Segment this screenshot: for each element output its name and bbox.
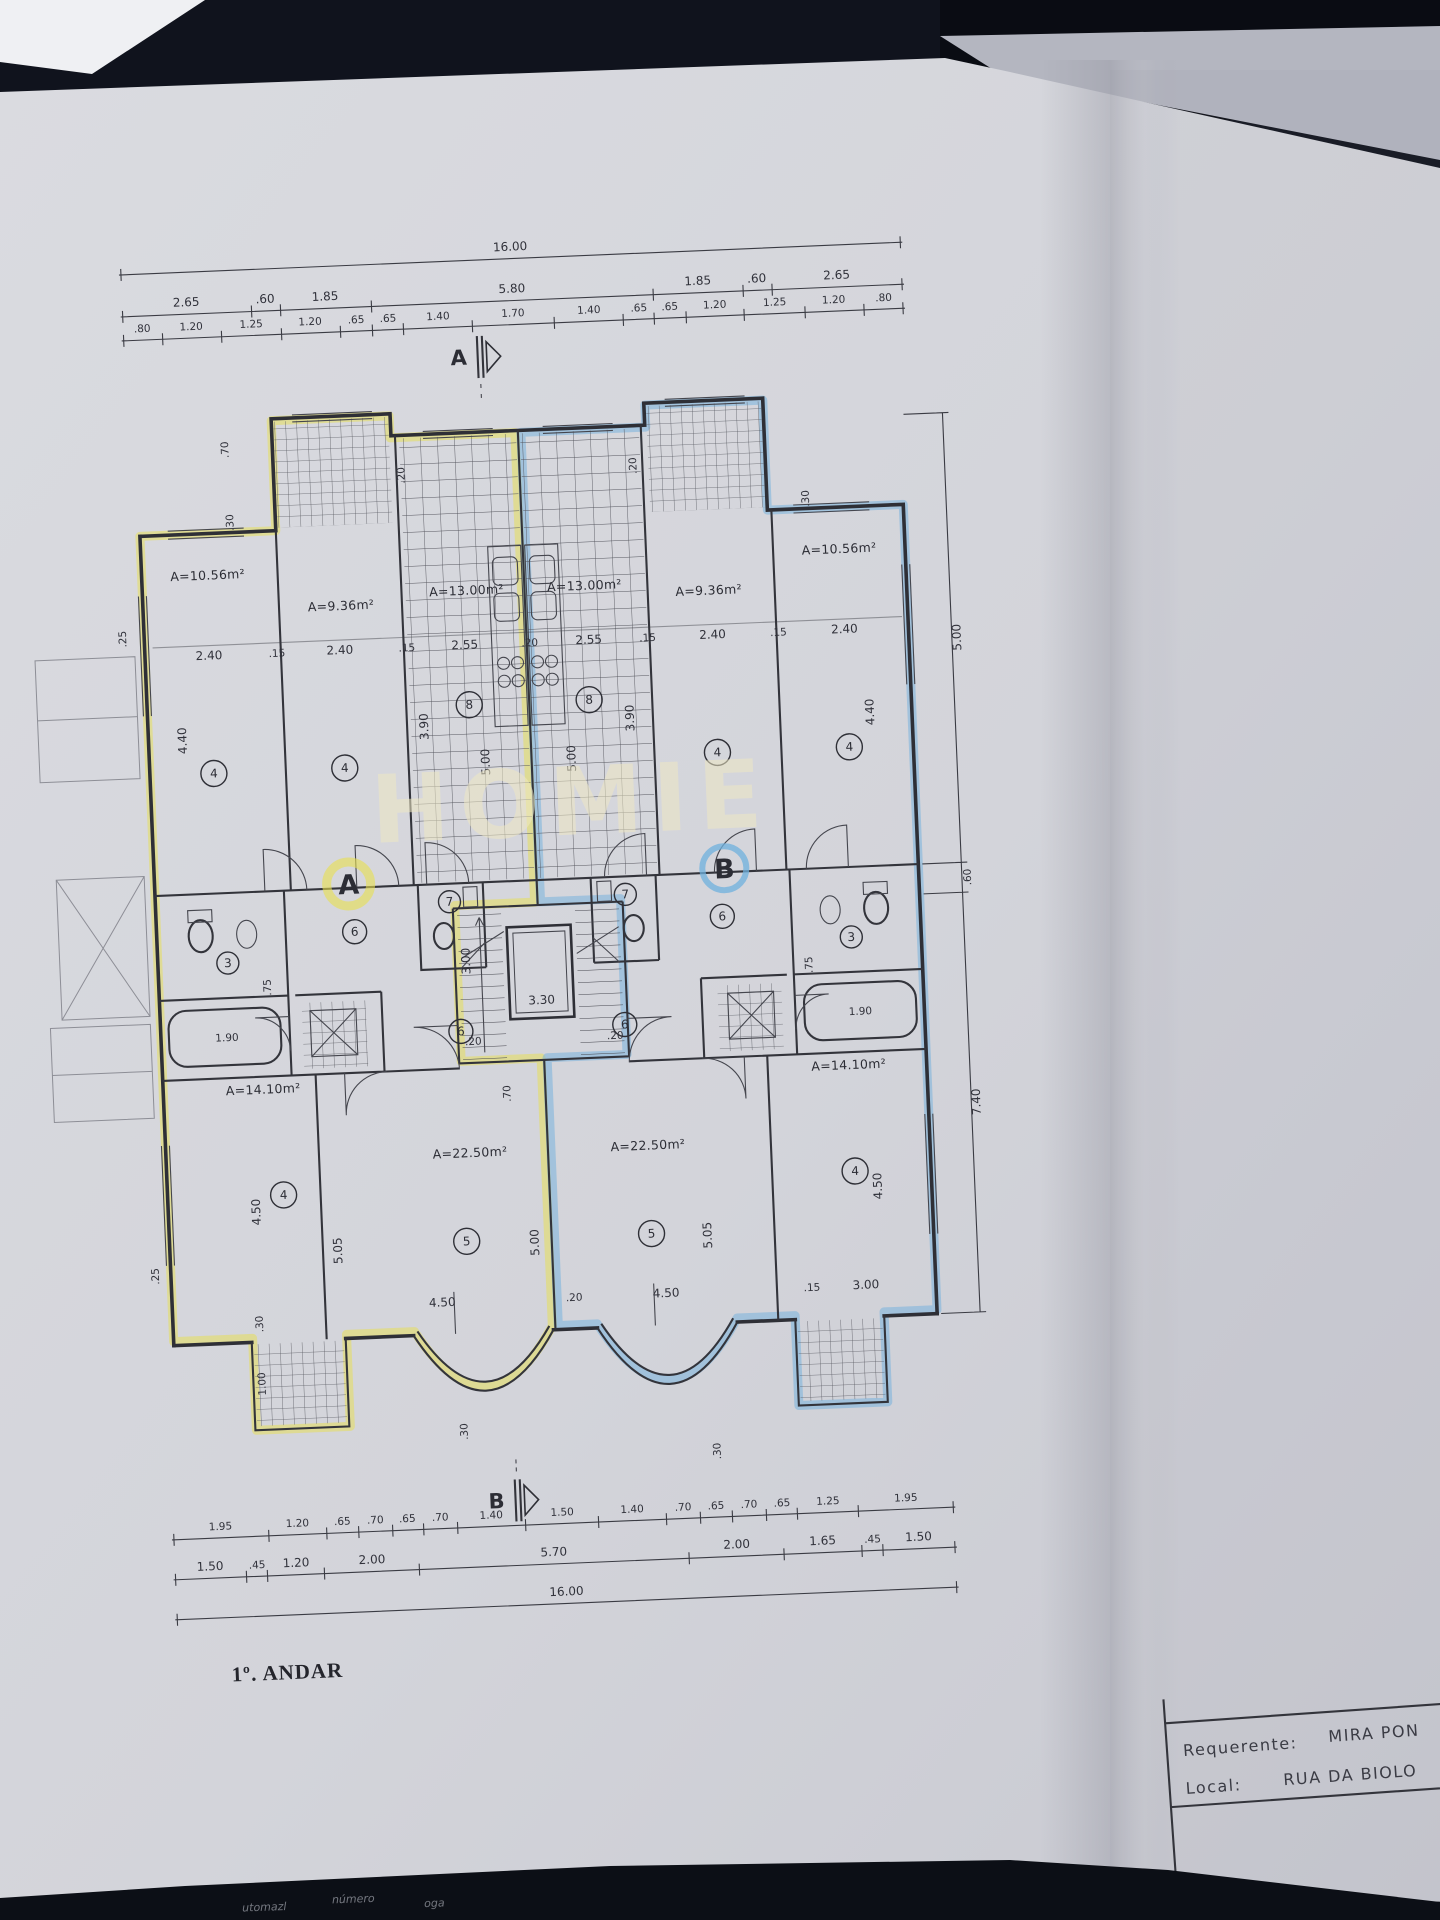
section-marker-top-label: A: [450, 346, 468, 371]
dim-label: .70: [740, 1498, 757, 1511]
room-number: 4: [280, 1188, 288, 1202]
dim-label: 1.90: [849, 1005, 873, 1018]
dim-label: 1.20: [298, 316, 322, 329]
paper-right-panel-tint: [1110, 70, 1440, 1920]
room-number: 8: [465, 698, 473, 712]
dim-label: .80: [875, 292, 892, 305]
dim-label: 4.50: [429, 1295, 456, 1310]
room-number: 4: [210, 766, 218, 780]
room-number: 7: [445, 895, 453, 909]
dim-label: .65: [661, 301, 678, 314]
room-area-label: A=13.00m²: [429, 581, 504, 599]
dim-label: .30: [254, 1315, 267, 1332]
dim-label: 1.25: [816, 1495, 840, 1508]
dim-label: 3.00: [852, 1277, 879, 1292]
dim-label: 5.05: [330, 1237, 345, 1264]
dim-label: 4.50: [870, 1172, 885, 1199]
dim-label: .15: [639, 632, 656, 645]
dim-label: .15: [770, 626, 787, 639]
room-area-label: A=10.56m²: [170, 566, 245, 584]
dim-label: 4.50: [249, 1198, 264, 1225]
room-number: 3: [847, 930, 855, 944]
dim-label: 5.00: [527, 1229, 542, 1256]
dim-label: 1.95: [894, 1492, 918, 1505]
dim-label: .70: [674, 1501, 691, 1514]
dim-label: .20: [627, 457, 640, 474]
dim-label: 1.40: [426, 310, 450, 323]
dim-label: .70: [219, 441, 232, 458]
dim-label: .60: [747, 271, 767, 286]
dim-label: 1.90: [215, 1032, 239, 1045]
dim-label: 1.20: [703, 299, 727, 312]
dim-label: 5.05: [700, 1222, 715, 1249]
room-number: 8: [585, 693, 593, 707]
dim-label: 1.65: [809, 1533, 836, 1548]
room-number: 4: [845, 740, 853, 754]
dim-label: .75: [262, 979, 275, 996]
dim-label: 1.25: [763, 296, 787, 309]
dim-label: 1.25: [239, 318, 263, 331]
dim-label: 1.40: [620, 1503, 644, 1516]
dim-label: 2.65: [823, 267, 850, 282]
dim-label: 4.50: [652, 1285, 679, 1300]
dim-label: 2.40: [699, 627, 726, 642]
edge-text-fragment: número: [332, 1892, 375, 1906]
dim-label: .65: [334, 1515, 351, 1528]
dim-label: 16.00: [493, 239, 528, 254]
room-area-label: A=22.50m²: [610, 1136, 685, 1154]
dim-label: .15: [268, 647, 285, 660]
room-number: 6: [351, 925, 359, 939]
dim-label: 2.40: [326, 643, 353, 658]
dim-label: .25: [117, 631, 130, 648]
dim-label: .20: [566, 1292, 583, 1305]
dim-label: .30: [711, 1442, 724, 1459]
room-area-label: A=9.36m²: [307, 597, 374, 615]
dim-label: .70: [367, 1514, 384, 1527]
dim-label: 1.50: [550, 1506, 574, 1519]
room-number: 6: [718, 909, 726, 923]
room-area-label: A=13.00m²: [547, 576, 622, 594]
dim-label: 1.50: [905, 1529, 932, 1544]
dim-label: .75: [803, 956, 816, 973]
dim-label: 1.70: [501, 307, 525, 320]
dim-label: 2.55: [575, 632, 602, 647]
dim-label: 2.00: [723, 1537, 750, 1552]
room-number: 4: [851, 1164, 859, 1178]
terrace-a: [273, 417, 392, 528]
dim-label: .70: [501, 1085, 514, 1102]
dim-label: .25: [150, 1268, 163, 1285]
dim-label: 7.40: [969, 1088, 984, 1115]
dim-label: 1.95: [209, 1520, 233, 1533]
dim-label: 2.65: [173, 295, 200, 310]
dim-label: 2.40: [831, 621, 858, 636]
dim-label: .30: [224, 514, 237, 531]
floor-title: 1º. ANDAR: [231, 1658, 344, 1687]
dim-label: 1.85: [311, 289, 338, 304]
dim-label: 5.70: [540, 1544, 567, 1559]
dim-label: .15: [398, 642, 415, 655]
dim-label: 5.00: [949, 624, 964, 651]
dim-label: .20: [607, 1030, 624, 1043]
dim-label: 5.80: [498, 281, 525, 296]
dim-label: 16.00: [549, 1584, 584, 1599]
dim-label: .65: [707, 1500, 724, 1513]
dim-label: 2.40: [195, 648, 222, 663]
dim-label: 1.40: [577, 304, 601, 317]
dim-label: .65: [773, 1497, 790, 1510]
dim-label: .20: [521, 637, 538, 650]
dim-label: 1.50: [196, 1559, 223, 1574]
dim-label: .70: [432, 1511, 449, 1524]
dim-label: 1.00: [256, 1372, 269, 1396]
edge-text-fragment: oga: [424, 1896, 445, 1910]
dim-label: .65: [399, 1513, 416, 1526]
terrace-b: [646, 401, 765, 512]
dim-label: .60: [962, 868, 975, 885]
dim-label: .80: [134, 323, 151, 336]
photo-of-floor-plan: 16.00 2.65 .60 1.85 5.80 1.85 .60 2.65 .…: [0, 0, 1440, 1920]
dim-label: 3.90: [622, 704, 637, 731]
dim-label: 1.20: [282, 1555, 309, 1570]
dim-label: 1.20: [179, 321, 203, 334]
dim-label: 4.40: [862, 698, 877, 725]
dim-label: .30: [458, 1423, 471, 1440]
dim-label: 1.85: [684, 273, 711, 288]
apartment-a-letter: A: [338, 870, 360, 902]
room-area-label: A=22.50m²: [432, 1144, 507, 1162]
dim-label: .65: [379, 312, 396, 325]
dim-label: 3.30: [528, 992, 555, 1007]
dim-label: .65: [347, 314, 364, 327]
room-area-label: A=14.10m²: [226, 1080, 301, 1098]
room-area-label: A=10.56m²: [801, 540, 876, 558]
dim-label: .15: [803, 1282, 820, 1295]
local-label: Local:: [1185, 1775, 1242, 1798]
dim-label: .65: [630, 302, 647, 315]
room-area-label: A=14.10m²: [811, 1056, 886, 1074]
room-number: 3: [224, 956, 232, 970]
dim-label: .45: [864, 1533, 881, 1546]
dim-label: 1.20: [822, 294, 846, 307]
dim-label: .30: [800, 490, 813, 507]
dim-label: 4.40: [175, 727, 190, 754]
dim-label: 1.40: [479, 1509, 503, 1522]
room-number: 4: [341, 761, 349, 775]
homie-watermark: HOMIE: [369, 740, 775, 866]
dim-label: .60: [255, 292, 275, 307]
balcony-b: [797, 1318, 885, 1401]
room-number: 5: [463, 1234, 471, 1248]
apartment-b-letter: B: [713, 854, 735, 886]
room-number: 7: [621, 887, 629, 901]
dim-label: 2.55: [451, 637, 478, 652]
dim-label: .45: [249, 1559, 266, 1572]
dim-label: .20: [465, 1036, 482, 1049]
dim-label: .20: [395, 467, 408, 484]
room-area-label: A=9.36m²: [675, 581, 742, 599]
dim-label: 2.00: [358, 1552, 385, 1567]
dim-label: 3.90: [417, 713, 432, 740]
room-number: 5: [647, 1226, 655, 1240]
dim-label: 1.20: [285, 1517, 309, 1530]
edge-text-fragment: utomazl: [242, 1900, 287, 1915]
dim-label: 3.00: [458, 947, 473, 974]
